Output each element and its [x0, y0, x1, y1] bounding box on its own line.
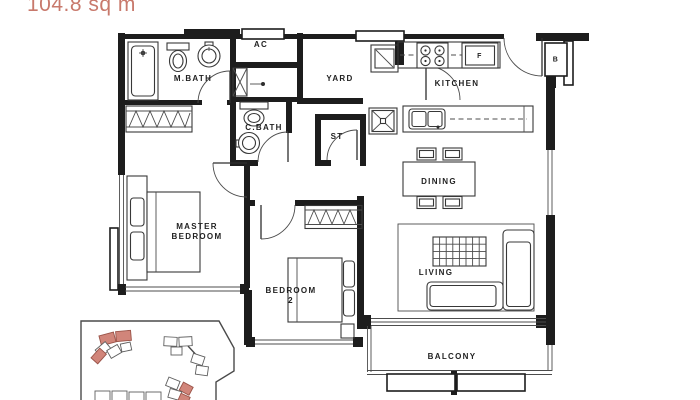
room-label-bedroom2-1: BEDROOM	[266, 286, 317, 295]
site-buildings	[91, 330, 208, 400]
rug	[433, 237, 486, 266]
room-label-ac: AC	[254, 40, 268, 49]
bed-bedroom2	[288, 258, 355, 338]
kitchen-counter-low	[403, 106, 533, 132]
floorplan-page: 104.8 sq m	[0, 0, 700, 400]
site-plan	[81, 321, 234, 400]
floorplan-drawing: 104.8 sq m	[0, 0, 700, 400]
door-entrance	[504, 38, 542, 76]
site-boundary	[81, 321, 234, 400]
stove	[417, 43, 448, 68]
room-label-yard: YARD	[326, 74, 353, 83]
service-shaft	[233, 68, 265, 96]
room-label-bedroom2-2: 2	[288, 296, 294, 305]
room-label-store: ST	[331, 132, 344, 141]
room-label-cbath: C.BATH	[245, 123, 282, 132]
shelter-closet: B	[545, 43, 567, 76]
wardrobe-bedroom2	[305, 206, 362, 229]
wardrobe-master	[126, 106, 192, 132]
shelter-label: B	[553, 57, 559, 64]
fridge-label: F	[477, 53, 482, 60]
exterior-ledge	[110, 228, 118, 290]
lintel-block	[242, 29, 284, 39]
fridge: F	[462, 43, 498, 68]
room-label-kitchen: KITCHEN	[435, 79, 480, 88]
room-label-master-1: MASTER	[176, 222, 218, 231]
toilet-mbath	[167, 43, 189, 72]
bathtub	[128, 42, 158, 100]
room-label-balcony: BALCONY	[428, 352, 477, 361]
door-bedroom2	[261, 205, 295, 239]
room-label-dining: DINING	[421, 177, 457, 186]
room-label-mbath: M.BATH	[174, 74, 212, 83]
lintel-block	[356, 31, 404, 41]
basin-mbath	[198, 42, 220, 67]
room-label-living: LIVING	[419, 268, 453, 277]
door-master	[213, 163, 247, 197]
yard-sink	[371, 45, 398, 72]
unit-area-label: 104.8 sq m	[27, 0, 136, 16]
room-label-master-2: BEDROOM	[172, 232, 223, 241]
basin-cbath	[236, 133, 260, 154]
door-cbath	[258, 132, 288, 162]
washing-machine	[369, 108, 397, 134]
